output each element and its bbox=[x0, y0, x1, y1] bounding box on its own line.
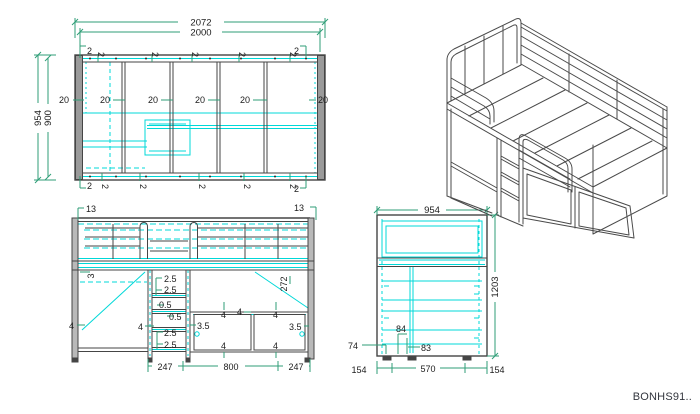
isometric-view-drawing bbox=[420, 10, 692, 242]
dim-13-left: 13 bbox=[86, 204, 96, 214]
dim-2: 2 bbox=[87, 181, 92, 191]
dim-4-door: 4 bbox=[221, 310, 226, 320]
dim-1203: 1203 bbox=[490, 276, 501, 297]
dim-20: 20 bbox=[240, 95, 250, 105]
dim-2: 2 bbox=[190, 52, 200, 57]
dim-20: 20 bbox=[100, 95, 110, 105]
dim-2: 2 bbox=[242, 184, 252, 189]
dim-2_5: 2.5 bbox=[164, 285, 177, 295]
dim-4-door: 4 bbox=[237, 307, 242, 317]
dim-83: 83 bbox=[421, 343, 431, 353]
top-view-outline bbox=[75, 55, 325, 180]
technical-drawing-sheet: { "meta": { "code": "BONHS91.." }, "colo… bbox=[0, 0, 700, 414]
front-view-drawing: 13 13 3 4 4 2.5 2.5 0.5 0.5 2.5 2.5 3.5 … bbox=[28, 196, 340, 392]
dim-154-left: 154 bbox=[351, 365, 366, 375]
dim-4-left: 4 bbox=[69, 321, 74, 331]
dim-4-door: 4 bbox=[221, 341, 226, 351]
dim-154-right: 154 bbox=[489, 365, 504, 375]
dim-0_5: 0.5 bbox=[169, 312, 182, 322]
dim-2: 2 bbox=[150, 52, 160, 57]
iso-shelf-column bbox=[497, 138, 523, 226]
iso-left-post bbox=[447, 103, 492, 216]
dim-800: 800 bbox=[223, 362, 238, 372]
dim-247-right: 247 bbox=[288, 362, 303, 372]
dim-inner-depth: 900 bbox=[43, 110, 54, 126]
iso-platform bbox=[447, 64, 667, 193]
iso-foot-panel bbox=[593, 107, 667, 234]
dim-3: 3 bbox=[86, 273, 96, 278]
top-view-hidden-lines bbox=[78, 59, 318, 177]
dim-20: 20 bbox=[148, 95, 158, 105]
top-view-drawing: 2072 2000 954 900 20 20 20 20 20 20 2 2 … bbox=[28, 8, 340, 204]
iso-headboard bbox=[447, 19, 521, 103]
dim-2: 2 bbox=[237, 52, 247, 57]
dim-2: 2 bbox=[96, 52, 106, 57]
dim-272: 272 bbox=[279, 276, 289, 291]
dim-247-left: 247 bbox=[157, 362, 172, 372]
dim-4-door: 4 bbox=[273, 341, 278, 351]
dim-2_5: 2.5 bbox=[164, 340, 177, 350]
dim-4-door: 4 bbox=[273, 310, 278, 320]
dim-2_5: 2.5 bbox=[164, 328, 177, 338]
dim-13-right: 13 bbox=[294, 203, 304, 213]
dim-84: 84 bbox=[396, 324, 406, 334]
dim-2: 2 bbox=[100, 184, 110, 189]
iso-back-rail bbox=[521, 23, 667, 138]
dim-2: 2 bbox=[138, 184, 148, 189]
dim-20: 20 bbox=[59, 95, 69, 105]
dim-2_5: 2.5 bbox=[164, 274, 177, 284]
dim-20: 20 bbox=[195, 95, 205, 105]
dim-2: 2 bbox=[294, 184, 299, 194]
dim-74: 74 bbox=[348, 341, 358, 351]
dim-20: 20 bbox=[318, 95, 328, 105]
dim-570: 570 bbox=[420, 364, 435, 374]
dim-3_5-left: 3.5 bbox=[197, 321, 210, 331]
dim-2: 2 bbox=[87, 46, 92, 56]
iso-desk bbox=[451, 162, 497, 192]
dim-3_5-right: 3.5 bbox=[289, 322, 302, 332]
dim-4-mid: 4 bbox=[138, 322, 143, 332]
dim-0_5: 0.5 bbox=[159, 300, 172, 310]
dim-inner-width: 2000 bbox=[190, 28, 211, 39]
drawing-code: BONHS91.. bbox=[572, 391, 692, 403]
dim-2: 2 bbox=[294, 46, 299, 56]
dim-2: 2 bbox=[197, 184, 207, 189]
